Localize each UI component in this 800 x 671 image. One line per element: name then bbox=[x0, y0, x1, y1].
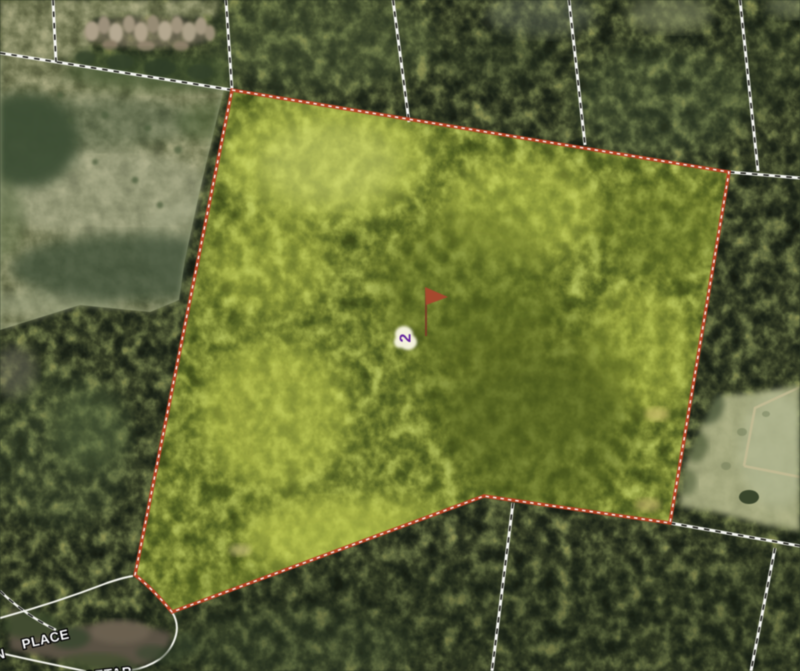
svg-text:2: 2 bbox=[398, 333, 415, 342]
